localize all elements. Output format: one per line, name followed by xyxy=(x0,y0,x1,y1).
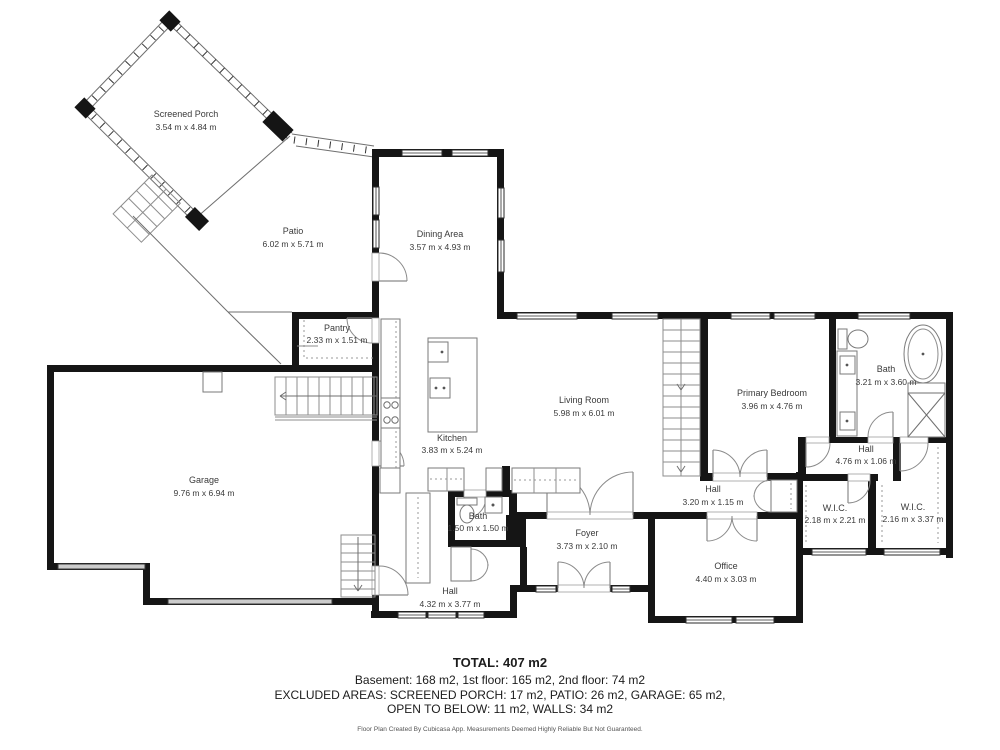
svg-text:9.76 m x 6.94 m: 9.76 m x 6.94 m xyxy=(174,488,235,498)
cooktop xyxy=(430,378,450,398)
office-hall-closet xyxy=(771,480,797,512)
window xyxy=(884,549,940,555)
svg-text:5.98 m x 6.01 m: 5.98 m x 6.01 m xyxy=(554,408,615,418)
toilet-tank xyxy=(838,329,847,349)
disclaimer: Floor Plan Created By Cubicasa App. Meas… xyxy=(357,726,643,733)
window xyxy=(858,313,910,319)
room-label-bath: Bath xyxy=(877,364,896,374)
room-label-hall-mid: Hall xyxy=(705,484,721,494)
excluded-areas-line1: EXCLUDED AREAS: SCREENED PORCH: 17 m2, P… xyxy=(274,688,725,702)
screened-porch xyxy=(74,10,374,242)
toilet xyxy=(848,330,868,348)
window xyxy=(612,313,658,319)
room-label-kitchen: Kitchen xyxy=(437,433,467,443)
toilet-tank xyxy=(457,498,477,505)
room-label-primary-bedroom: Primary Bedroom xyxy=(737,388,807,398)
main-staircase xyxy=(663,319,700,476)
window xyxy=(373,220,379,248)
window xyxy=(686,617,732,623)
window xyxy=(402,150,442,156)
excluded-areas-line2: OPEN TO BELOW: 11 m2, WALLS: 34 m2 xyxy=(387,702,613,716)
window xyxy=(452,150,488,156)
svg-text:4.40 m x 3.03 m: 4.40 m x 3.03 m xyxy=(696,574,757,584)
total-area: TOTAL: 407 m2 xyxy=(453,655,547,670)
garage-staircase xyxy=(341,535,375,597)
svg-text:4.76 m x 1.06 m: 4.76 m x 1.06 m xyxy=(836,456,897,466)
floor-areas: Basement: 168 m2, 1st floor: 165 m2, 2nd… xyxy=(355,673,645,687)
svg-text:4.32 m x 3.77 m: 4.32 m x 3.77 m xyxy=(420,599,481,609)
garage-post xyxy=(203,372,222,392)
room-label-wic-2: W.I.C. xyxy=(901,502,926,512)
room-label-hall-lower: Hall xyxy=(442,586,458,596)
svg-text:3.20 m x 1.15 m: 3.20 m x 1.15 m xyxy=(683,497,744,507)
svg-text:1.50 m x 1.50 m: 1.50 m x 1.50 m xyxy=(448,523,509,533)
area-summary: TOTAL: 407 m2 Basement: 168 m2, 1st floo… xyxy=(274,655,725,733)
svg-text:3.57 m x 4.93 m: 3.57 m x 4.93 m xyxy=(410,242,471,252)
svg-text:2.18 m x 2.21 m: 2.18 m x 2.21 m xyxy=(805,515,866,525)
floor-plan-page: Screened Porch 3.54 m x 4.84 m Patio 6.0… xyxy=(0,0,1000,750)
window xyxy=(536,586,556,592)
room-label-dining-area: Dining Area xyxy=(417,229,464,239)
window xyxy=(736,617,774,623)
svg-text:3.83 m x 5.24 m: 3.83 m x 5.24 m xyxy=(422,445,483,455)
svg-text:2.33 m x 1.51 m: 2.33 m x 1.51 m xyxy=(307,335,368,345)
window xyxy=(517,313,577,319)
svg-text:3.21 m x 3.60 m: 3.21 m x 3.60 m xyxy=(856,377,917,387)
svg-text:3.73 m x 2.10 m: 3.73 m x 2.10 m xyxy=(557,541,618,551)
svg-text:6.02 m x 5.71 m: 6.02 m x 5.71 m xyxy=(263,239,324,249)
shower xyxy=(908,383,945,437)
window xyxy=(812,549,866,555)
svg-text:2.16 m x 3.37 m: 2.16 m x 3.37 m xyxy=(883,514,944,524)
room-labels: Screened Porch 3.54 m x 4.84 m Patio 6.0… xyxy=(154,109,944,609)
room-label-office: Office xyxy=(714,561,737,571)
window xyxy=(612,586,630,592)
window xyxy=(398,612,426,618)
room-label-living-room: Living Room xyxy=(559,395,609,405)
room-label-bath-small: Bath xyxy=(469,511,488,521)
room-label-screened-porch: Screened Porch xyxy=(154,109,219,119)
room-label-foyer: Foyer xyxy=(575,528,598,538)
basement-staircase xyxy=(275,377,377,420)
window xyxy=(458,612,484,618)
room-label-wic-1: W.I.C. xyxy=(823,503,848,513)
svg-text:3.96 m x 4.76 m: 3.96 m x 4.76 m xyxy=(742,401,803,411)
window xyxy=(373,187,379,215)
room-label-hall-upper: Hall xyxy=(858,444,874,454)
floor-plan-drawing: Screened Porch 3.54 m x 4.84 m Patio 6.0… xyxy=(0,0,1000,750)
porch-stairs xyxy=(113,175,180,242)
window xyxy=(731,313,770,319)
window xyxy=(498,188,504,218)
room-label-garage: Garage xyxy=(189,475,219,485)
window xyxy=(498,240,504,272)
window xyxy=(774,313,815,319)
kitchen-sink xyxy=(428,342,448,362)
room-label-pantry: Pantry xyxy=(324,323,351,333)
window xyxy=(428,612,456,618)
svg-text:3.54 m x 4.84 m: 3.54 m x 4.84 m xyxy=(156,122,217,132)
room-label-patio: Patio xyxy=(283,226,304,236)
kitchen-fixtures xyxy=(380,319,580,493)
